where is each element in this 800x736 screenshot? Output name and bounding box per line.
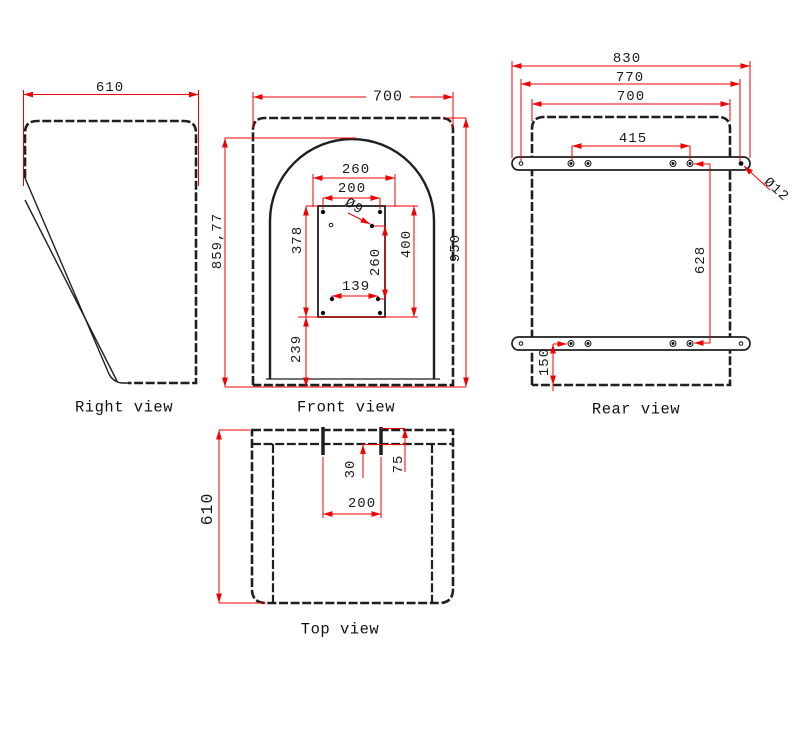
dim-front-bottom-offset: 239 — [290, 335, 304, 363]
dim-front-bottom-hole-span: 139 — [342, 280, 370, 294]
right-view-slant-inner — [25, 200, 117, 381]
top-view-outline — [252, 430, 453, 603]
right-view-slant-outer — [25, 178, 128, 383]
front-view-outline — [253, 118, 453, 385]
right-view-label: Right view — [75, 400, 173, 416]
dim-top-slot-depth: 30 — [344, 460, 358, 479]
dim-right-width: 610 — [96, 81, 124, 95]
dimension-layer — [24, 61, 771, 603]
drawing-canvas — [0, 0, 800, 736]
dim-rear-body-width: 700 — [617, 90, 645, 104]
dim-front-left-height: 378 — [291, 226, 305, 254]
geometry-layer — [25, 117, 730, 603]
right-view-dims — [24, 90, 199, 186]
right-view-geometry — [25, 121, 196, 383]
dim-rear-end-hole-span: 770 — [616, 71, 644, 85]
dim-front-right-height: 400 — [400, 230, 414, 258]
dim-top-depth: 610 — [200, 493, 217, 526]
dim-front-total-height: 950 — [449, 234, 463, 262]
dim-top-slot-offset: 75 — [392, 455, 406, 474]
top-view-dims — [219, 429, 406, 604]
top-view-label: Top view — [301, 622, 379, 638]
drawing-sheet: 610 Right view 700 859,77 950 260 200 Ø9… — [0, 0, 800, 736]
front-view-label: Front view — [297, 400, 395, 416]
front-view-geometry — [253, 118, 453, 385]
front-view-dims — [225, 92, 466, 387]
rear-bracket-top — [512, 157, 750, 170]
dim-rear-vertical-span: 628 — [694, 246, 708, 274]
dim-front-arch-height: 859,77 — [211, 213, 225, 269]
dim-rear-hole-span: 415 — [619, 132, 647, 146]
rear-brackets — [512, 157, 750, 350]
dim-rear-bottom-offset: 150 — [538, 348, 552, 376]
dim-front-top-hole-span: 200 — [338, 182, 366, 196]
dim-top-slot-span: 200 — [348, 497, 376, 511]
dim-front-plate-width: 260 — [342, 163, 370, 177]
dim-front-width: 700 — [371, 90, 405, 105]
rear-view-label: Rear view — [592, 402, 680, 418]
top-view-geometry — [252, 427, 453, 603]
dim-front-mid-hole-span: 260 — [369, 248, 383, 276]
dim-rear-overall-width: 830 — [613, 52, 641, 66]
